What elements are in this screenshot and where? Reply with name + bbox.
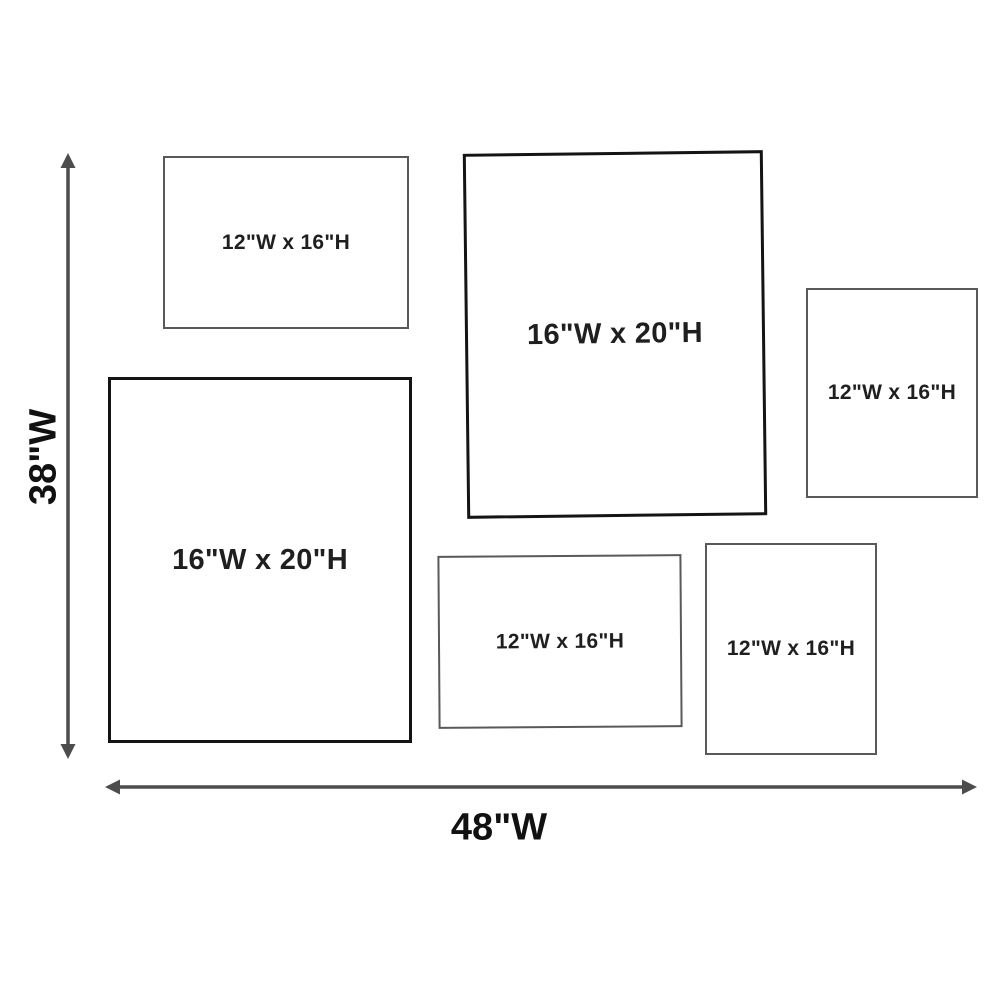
wall-width-label: 48"W <box>451 807 547 850</box>
wall-height-label: 38"W <box>23 409 66 505</box>
frame-size-label: 12"W x 16"H <box>496 629 624 654</box>
frame-16x20-left: 16"W x 20"H <box>108 377 412 743</box>
arrow-left-icon <box>105 780 120 795</box>
frame-size-label: 12"W x 16"H <box>828 381 956 405</box>
frame-size-label: 12"W x 16"H <box>727 637 855 661</box>
frame-size-label: 16"W x 20"H <box>527 317 703 352</box>
frame-12x16-right: 12"W x 16"H <box>806 288 978 498</box>
horizontal-dimension-arrow <box>105 780 977 795</box>
frame-12x16-top-left: 12"W x 16"H <box>163 156 409 329</box>
frame-size-label: 16"W x 20"H <box>172 544 348 577</box>
frame-size-label: 12"W x 16"H <box>222 231 350 255</box>
frame-12x16-bottom-right: 12"W x 16"H <box>705 543 877 755</box>
arrow-down-icon <box>61 744 76 759</box>
frame-16x20-top-center: 16"W x 20"H <box>463 150 767 519</box>
arrow-up-icon <box>61 153 76 168</box>
gallery-wall-layout-diagram: 38"W 48"W 12"W x 16"H 16"W x 20"H 12"W x… <box>0 0 1000 1000</box>
frame-12x16-bottom-center: 12"W x 16"H <box>437 554 682 729</box>
arrow-right-icon <box>962 780 977 795</box>
